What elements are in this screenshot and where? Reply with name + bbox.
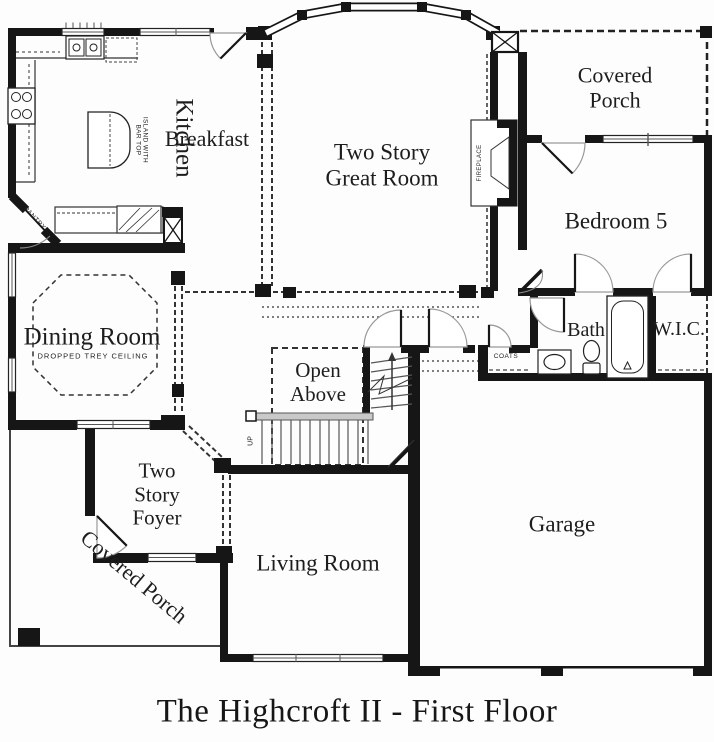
kitchen-island <box>88 112 130 168</box>
covered-porch-upper-label: Covered Porch <box>578 63 653 114</box>
great-room-label-line1: Two Story <box>325 140 438 166</box>
kitchen-sink <box>66 36 104 59</box>
breakfast-label: Breakfast <box>165 128 249 150</box>
bath-label: Bath <box>567 320 605 340</box>
open-above-line2: Above <box>290 382 346 406</box>
kitchen-lower-counter <box>55 206 163 233</box>
stairs-up-label: UP <box>248 436 255 446</box>
covered-porch-upper-line1: Covered <box>578 63 653 88</box>
arched-window-bay <box>266 2 498 33</box>
great-room-label: Two Story Great Room <box>325 140 438 193</box>
dining-room-label: Dining Room <box>24 325 161 350</box>
toilet <box>583 341 600 375</box>
island-label: ISLAND WITH BAR TOP <box>134 117 149 163</box>
porch-corner-post <box>700 26 712 38</box>
great-room-label-line2: Great Room <box>325 166 438 192</box>
wic-label: W.I.C. <box>653 319 705 339</box>
island-label-line2: BAR TOP <box>134 117 141 163</box>
garage-label: Garage <box>529 513 595 536</box>
coats-label: COATS <box>494 354 518 361</box>
foyer-line1: Two <box>133 460 182 484</box>
open-above-line1: Open <box>290 358 346 382</box>
covered-porch-upper-line2: Porch <box>578 88 653 113</box>
bath-vanity <box>538 350 571 374</box>
floor-plan: Kitchen ISLAND WITH BAR TOP Breakfast Tw… <box>0 0 714 742</box>
bathtub <box>607 296 648 378</box>
cooktop-stove <box>8 88 35 124</box>
foyer-line2: Story <box>133 483 182 507</box>
foyer-line3: Foyer <box>133 507 182 531</box>
island-label-line1: ISLAND WITH <box>141 117 148 163</box>
bedroom-5-label: Bedroom 5 <box>565 210 668 233</box>
foyer-label: Two Story Foyer <box>133 460 182 531</box>
living-room-label: Living Room <box>256 552 379 575</box>
plan-title: The Highcroft II - First Floor <box>157 696 558 729</box>
fireplace-label: FIREPLACE <box>477 145 483 182</box>
dining-room-sublabel: DROPPED TREY CEILING <box>38 352 149 360</box>
open-above-label: Open Above <box>290 358 346 406</box>
porch-post <box>18 628 40 646</box>
